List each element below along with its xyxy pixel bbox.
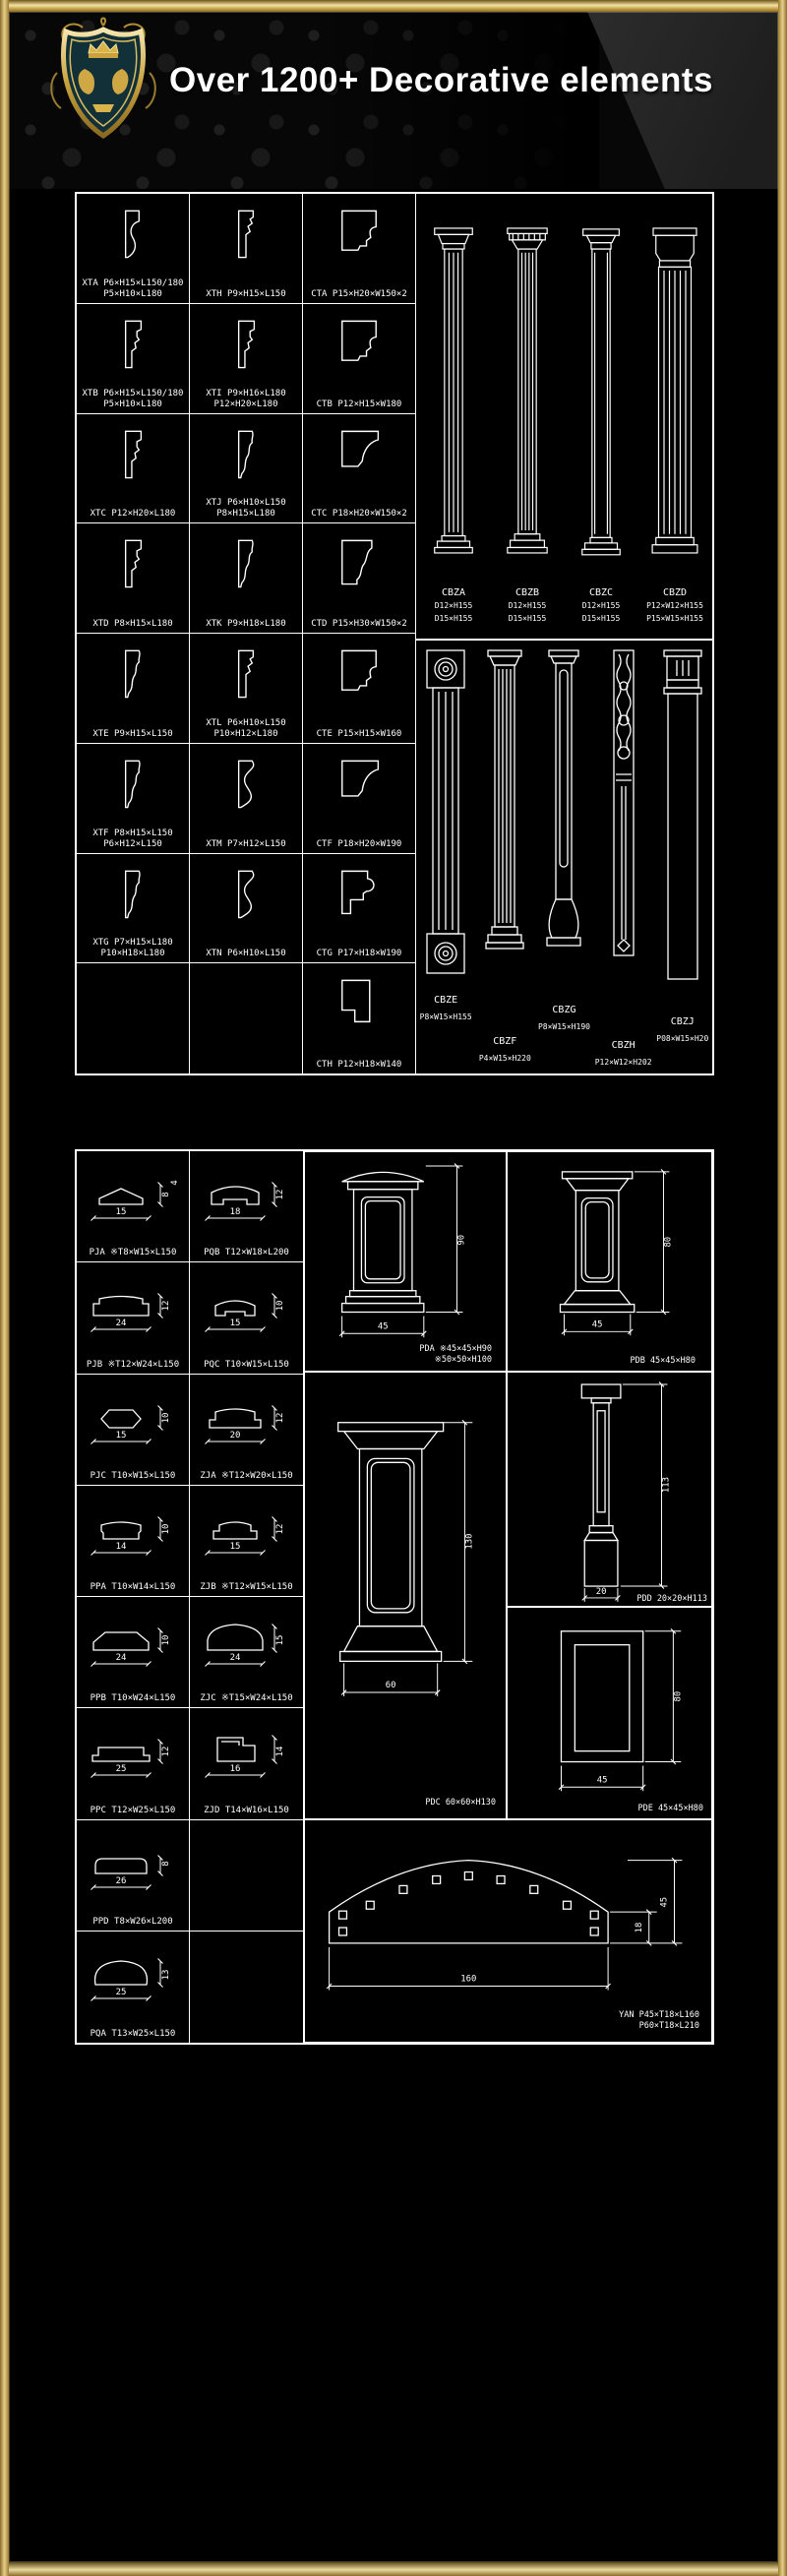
pedestal-cell-pde: 45 80 PDE 45×45×H80 xyxy=(507,1607,712,1819)
item-dims2: P15×W15×H155 xyxy=(646,613,703,624)
profile-drawing: 2412 xyxy=(82,1270,184,1347)
item-code: PJA xyxy=(90,1248,105,1257)
dim-width: 25 xyxy=(116,1764,127,1774)
molding-cell: XTH P9×H15×L150 xyxy=(190,194,303,304)
molding-label: XTJ P6×H10×L150P8×H15×L180 xyxy=(206,498,285,522)
item-label: PDA ※45×45×H90 xyxy=(419,1344,492,1355)
molding-cell: CTH P12×H18×W140 xyxy=(303,963,416,1073)
item-dims2: P6×H12×L150 xyxy=(92,839,172,850)
item-dims: P6×H15×L150/180 xyxy=(103,278,183,288)
item-code: CTD xyxy=(311,619,327,629)
gold-frame-left xyxy=(0,0,9,2576)
profile-cell: 2410PPB T10×W24×L150 xyxy=(77,1597,190,1708)
molding-cell: XTC P12×H20×L180 xyxy=(77,414,190,524)
profile-label: PJC T10×W15×L150 xyxy=(91,1471,176,1485)
item-dims2: D15×H155 xyxy=(509,613,547,624)
molding-profile-drawing xyxy=(225,756,267,814)
dim-height: 12 xyxy=(161,1747,171,1757)
item-dims: P7×H15×L180 xyxy=(114,938,173,948)
profile-label: ZJB ※T12×W15×L150 xyxy=(200,1582,292,1596)
item-label: PDB 45×45×H80 xyxy=(630,1356,696,1367)
item-dims: P12×H18×W140 xyxy=(337,1060,401,1070)
item-label: PDE 45×45×H80 xyxy=(637,1804,703,1814)
dim-height1: 18 xyxy=(635,1923,644,1933)
column-label: CBZCD12×H155D15×H155 xyxy=(582,587,621,624)
pedestal-label: PDB 45×45×H80 xyxy=(630,1356,696,1367)
item-dims: P8×W15×H190 xyxy=(538,1021,590,1032)
item-code: PQA xyxy=(91,2029,106,2039)
molding-cell: XTA P6×H15×L150/180P5×H10×L180 xyxy=(77,194,190,304)
empty-cell xyxy=(190,1820,304,1932)
pedestal-drawing: 20 113 xyxy=(508,1373,711,1606)
item-code: PQC xyxy=(204,1360,219,1370)
item-code: XTB xyxy=(83,389,98,399)
column-drawing xyxy=(421,206,486,575)
dim-height: 13 xyxy=(161,1969,171,1980)
item-code: XTC xyxy=(91,509,106,519)
dim-height: 10 xyxy=(275,1301,285,1312)
profile-label: PJA ※T8×W15×L150 xyxy=(90,1248,177,1261)
dim-width: 20 xyxy=(596,1587,607,1597)
molding-cell: CTB P12×H15×W180 xyxy=(303,304,416,414)
pilaster-label: CBZFP4×W15×H220 xyxy=(479,1036,531,1064)
item-dims: ※T12×W24×L150 xyxy=(108,1360,180,1370)
molding-profile-drawing xyxy=(112,206,153,264)
item-dims: P15×H30×W150×2 xyxy=(333,619,407,629)
item-label: PDD 20×20×H113 xyxy=(636,1594,707,1605)
dim-width: 16 xyxy=(229,1764,240,1774)
pedestal-cell-pdb: 45 80 PDB 45×45×H80 xyxy=(507,1151,712,1372)
item-dims: D12×H155 xyxy=(582,600,621,611)
molding-profile-drawing xyxy=(112,866,153,924)
molding-cell: XTI P9×H16×L180P12×H20×L180 xyxy=(190,304,303,414)
profile-label: ZJD T14×W16×L150 xyxy=(204,1806,289,1819)
molding-profile-drawing xyxy=(225,535,267,593)
profile-drawing: 1584 xyxy=(82,1159,184,1236)
molding-profile-drawing xyxy=(333,975,385,1030)
profile-cell: 1510PJC T10×W15×L150 xyxy=(77,1375,190,1486)
molding-cell: CTE P15×H15×W160 xyxy=(303,634,416,744)
pedestal-drawing: 45 80 xyxy=(508,1152,711,1371)
molding-profile-drawing xyxy=(225,645,267,704)
item-dims: P9×H16×L180 xyxy=(227,389,286,399)
item-dims: T13×W25×L150 xyxy=(111,2029,175,2039)
molding-cell: XTD P8×H15×L180 xyxy=(77,523,190,634)
item-code: XTF xyxy=(92,828,108,838)
profile-drawing: 1812 xyxy=(196,1159,298,1236)
item-dims: P12×H20×L180 xyxy=(111,509,175,519)
item-dims: P18×H20×W190 xyxy=(337,839,401,849)
dim-height2: 45 xyxy=(660,1897,670,1908)
molding-cell: XTK P9×H18×L180 xyxy=(190,523,303,634)
pedestal-drawing: 45 80 xyxy=(508,1608,711,1818)
profile-drawing: 1614 xyxy=(196,1716,298,1793)
column-figure: CBZCD12×H155D15×H155 xyxy=(565,194,637,639)
column-label: CBZAD12×H155D15×H155 xyxy=(435,587,473,624)
page-title: Over 1200+ Decorative elements xyxy=(169,61,713,100)
molding-label: XTM P7×H12×L150 xyxy=(206,839,285,853)
molding-profile-drawing xyxy=(112,426,153,484)
item-dims: P08×W15×H20 xyxy=(656,1033,708,1044)
catalog-page: Over 1200+ Decorative elements XTA P6×H1… xyxy=(0,0,787,2576)
item-code: CBZG xyxy=(538,1005,590,1015)
column-drawing xyxy=(495,206,560,575)
dim-width: 14 xyxy=(116,1542,127,1552)
item-dims: P12×W12×H202 xyxy=(595,1057,652,1068)
profiles-grid: 1584PJA ※T8×W15×L150 1812PQB T12×W18×L20… xyxy=(77,1151,304,2043)
item-code: CTA xyxy=(311,289,327,299)
dim-height: 10 xyxy=(161,1412,171,1423)
panel-profiles-and-pedestals: 1584PJA ※T8×W15×L150 1812PQB T12×W18×L20… xyxy=(75,1149,714,2045)
item-dims: P15×H20×W150×2 xyxy=(333,289,407,299)
molding-cell: CTC P18×H20×W150×2 xyxy=(303,414,416,524)
item-dims: T12×W25×L150 xyxy=(111,1806,175,1815)
dim-height: 130 xyxy=(464,1533,474,1549)
item-code: XTL xyxy=(206,718,221,728)
item-dims: P12×W12×H155 xyxy=(646,600,703,611)
pilaster-drawing xyxy=(537,646,590,985)
item-dims: T14×W16×L150 xyxy=(225,1806,289,1815)
item-dims: ※T12×W15×L150 xyxy=(221,1582,293,1592)
molding-profile-drawing xyxy=(112,756,153,814)
empty-cell xyxy=(77,963,190,1073)
dim-width: 24 xyxy=(116,1653,127,1663)
item-code: CTH xyxy=(317,1060,333,1070)
profile-cell: 1584PJA ※T8×W15×L150 xyxy=(77,1151,190,1262)
item-dims: ※T8×W15×L150 xyxy=(110,1248,176,1257)
molding-profile-drawing xyxy=(225,426,267,484)
molding-cell: XTL P6×H10×L150P10×H12×L180 xyxy=(190,634,303,744)
dim-width: 18 xyxy=(229,1207,240,1217)
pilaster-drawing xyxy=(419,646,472,985)
item-code: CBZE xyxy=(420,995,472,1006)
molding-label: XTN P6×H10×L150 xyxy=(206,949,285,962)
profile-cell: 1614ZJD T14×W16×L150 xyxy=(190,1708,304,1819)
dim-width: 20 xyxy=(229,1431,240,1441)
molding-label: XTL P6×H10×L150P10×H12×L180 xyxy=(206,718,285,743)
molding-cell: CTG P17×H18×W190 xyxy=(303,854,416,964)
dim-height: 10 xyxy=(161,1635,171,1646)
dim-width: 45 xyxy=(378,1321,389,1331)
item-dims2: D15×H155 xyxy=(435,613,473,624)
molding-profile-drawing xyxy=(333,645,385,701)
item-dims: T12×W18×L200 xyxy=(225,1248,289,1257)
pilaster-figure: CBZHP12×W12×H202 xyxy=(594,641,653,1073)
arch-label: YAN P45×T18×L160P60×T18×L210 xyxy=(619,2010,699,2032)
profile-drawing: 1410 xyxy=(82,1494,184,1570)
item-code: XTK xyxy=(206,619,221,629)
item-dims2: P10×H12×L180 xyxy=(206,729,285,740)
dim-width: 45 xyxy=(597,1775,608,1785)
pilasters-row: CBZEP8×W15×H155 CBZFP4×W15×H220 CBZGP8×W… xyxy=(416,641,712,1073)
molding-cell: XTJ P6×H10×L150P8×H15×L180 xyxy=(190,414,303,524)
item-code: XTD xyxy=(92,619,108,629)
item-label2: P60×T18×L210 xyxy=(619,2021,699,2032)
pedestal-cell-pda: 45 90 PDA ※45×45×H90※50×50×H100 xyxy=(304,1151,507,1372)
molding-label: XTC P12×H20×L180 xyxy=(91,509,176,522)
item-label: YAN P45×T18×L160 xyxy=(619,2010,699,2021)
pilaster-drawing xyxy=(656,646,709,985)
dim-height: 113 xyxy=(661,1477,671,1493)
item-code: XTE xyxy=(92,729,108,739)
item-code: CTC xyxy=(311,509,327,519)
molding-label: XTK P9×H18×L180 xyxy=(206,619,285,633)
item-code: ZJD xyxy=(204,1806,219,1815)
profile-cell: 268PPD T8×W26×L200 xyxy=(77,1820,190,1932)
profile-label: PPD T8×W26×L200 xyxy=(92,1917,172,1931)
molding-label: CTA P15×H20×W150×2 xyxy=(311,289,407,303)
item-dims: P6×H10×L150 xyxy=(227,718,286,728)
item-code: PPD xyxy=(92,1917,108,1927)
dim-height: 90 xyxy=(456,1235,466,1246)
pedestal-label: PDE 45×45×H80 xyxy=(637,1804,703,1814)
dim-height: 12 xyxy=(275,1412,285,1423)
profile-drawing: 2410 xyxy=(82,1605,184,1682)
molding-cell: XTB P6×H15×L150/180P5×H10×L180 xyxy=(77,304,190,414)
item-label: PDC 60×60×H130 xyxy=(425,1798,496,1809)
item-code: CTG xyxy=(317,949,333,958)
molding-profile-drawing xyxy=(112,645,153,704)
profile-drawing: 1510 xyxy=(196,1270,298,1347)
item-code: CTE xyxy=(317,729,333,739)
pedestal-label: PDC 60×60×H130 xyxy=(425,1798,496,1809)
pilaster-drawing xyxy=(597,646,650,985)
item-dims: T10×W15×L150 xyxy=(111,1471,175,1481)
molding-label: XTG P7×H15×L180P10×H18×L180 xyxy=(92,938,172,962)
item-code: CTB xyxy=(317,399,333,409)
item-dims: P8×H15×L150 xyxy=(114,828,173,838)
molding-label: CTE P15×H15×W160 xyxy=(317,729,402,743)
dim-height: 80 xyxy=(673,1691,683,1702)
item-code: PPB xyxy=(91,1693,106,1703)
item-dims: D12×H155 xyxy=(435,600,473,611)
dim-width: 25 xyxy=(116,1988,127,1997)
dim-width: 15 xyxy=(116,1431,127,1441)
empty-cell xyxy=(190,963,303,1073)
item-code: ZJB xyxy=(200,1582,215,1592)
item-code: XTM xyxy=(206,839,221,849)
item-code: CBZJ xyxy=(656,1016,708,1027)
item-dims2: P10×H18×L180 xyxy=(92,949,172,959)
item-dims: P8×H15×L180 xyxy=(114,619,173,629)
item-dims: T10×W24×L150 xyxy=(111,1693,175,1703)
item-dims: D12×H155 xyxy=(509,600,547,611)
dim-height: 14 xyxy=(275,1747,285,1757)
dim-height: 12 xyxy=(275,1523,285,1534)
item-dims: P17×H18×W190 xyxy=(337,949,401,958)
item-dims: P6×H10×L150 xyxy=(227,949,286,958)
column-drawing xyxy=(569,206,634,575)
profile-drawing: 2513 xyxy=(82,1939,184,2016)
item-code: XTG xyxy=(92,938,108,948)
pilaster-figure: CBZFP4×W15×H220 xyxy=(475,641,534,1073)
profile-label: PQA T13×W25×L150 xyxy=(91,2029,176,2043)
molding-profile-drawing xyxy=(225,206,267,264)
item-code: CBZH xyxy=(595,1040,652,1051)
molding-cell: CTA P15×H20×W150×2 xyxy=(303,194,416,304)
item-dims2: P5×H10×L180 xyxy=(83,289,184,300)
profile-drawing: 1512 xyxy=(196,1494,298,1570)
molding-cell: XTM P7×H12×L150 xyxy=(190,744,303,854)
pedestal-cell-pdc: 60 130 PDC 60×60×H130 xyxy=(304,1372,507,1819)
item-label2: ※50×50×H100 xyxy=(419,1355,492,1366)
dim-height: 80 xyxy=(663,1237,673,1248)
column-figure: CBZDP12×W12×H155P15×W15×H155 xyxy=(638,194,711,639)
item-dims: P7×H12×L150 xyxy=(227,839,286,849)
molding-label: XTF P8×H15×L150P6×H12×L150 xyxy=(92,828,172,853)
pilaster-label: CBZEP8×W15×H155 xyxy=(420,995,472,1022)
item-dims: T10×W14×L150 xyxy=(111,1582,175,1592)
pedestal-drawing: 60 130 xyxy=(305,1373,506,1818)
item-code: XTA xyxy=(83,278,98,288)
item-code: CBZF xyxy=(479,1036,531,1047)
item-dims: ※T15×W24×L150 xyxy=(221,1693,293,1703)
item-dims: P9×H15×L150 xyxy=(114,729,173,739)
item-dims2: D15×H155 xyxy=(582,613,621,624)
profile-cell: 2512PPC T12×W25×L150 xyxy=(77,1708,190,1819)
profile-cell: 2415ZJC ※T15×W24×L150 xyxy=(190,1597,304,1708)
molding-label: CTH P12×H18×W140 xyxy=(317,1060,402,1073)
pedestal-label: PDD 20×20×H113 xyxy=(636,1594,707,1605)
item-code: XTH xyxy=(206,289,221,299)
profile-label: PPC T12×W25×L150 xyxy=(91,1806,176,1819)
molding-cell: XTE P9×H15×L150 xyxy=(77,634,190,744)
pilaster-label: CBZJP08×W15×H20 xyxy=(656,1016,708,1044)
pilaster-label: CBZGP8×W15×H190 xyxy=(538,1005,590,1032)
profile-cell: 2412PJB ※T12×W24×L150 xyxy=(77,1262,190,1374)
molding-profile-drawing xyxy=(333,535,385,590)
columns-row-top: CBZAD12×H155D15×H155 CBZBD12×H155D15×H15… xyxy=(416,194,712,639)
column-label: CBZBD12×H155D15×H155 xyxy=(509,587,547,624)
item-code: CTF xyxy=(317,839,333,849)
item-dims: ※T12×W20×L150 xyxy=(221,1471,293,1481)
pilaster-figure: CBZGP8×W15×H190 xyxy=(534,641,593,1073)
molding-label: XTI P9×H16×L180P12×H20×L180 xyxy=(206,389,285,413)
profile-label: ZJC ※T15×W24×L150 xyxy=(200,1693,292,1707)
molding-label: CTG P17×H18×W190 xyxy=(317,949,402,962)
pilaster-label: CBZHP12×W12×H202 xyxy=(595,1040,652,1068)
profile-drawing: 2012 xyxy=(196,1382,298,1459)
arch-cell-yan: 160 18 45 YAN P45×T18×L160P60×T18×L210 xyxy=(304,1819,712,2043)
dim-height: 8 xyxy=(161,1192,171,1196)
dim-height: 12 xyxy=(275,1190,285,1200)
profile-cell: 1410PPA T10×W14×L150 xyxy=(77,1486,190,1597)
panel-moldings-and-columns: XTA P6×H15×L150/180P5×H10×L180 XTH P9×H1… xyxy=(75,192,714,1075)
profile-label: ZJA ※T12×W20×L150 xyxy=(200,1471,292,1485)
item-code: PJC xyxy=(91,1471,106,1481)
dim-width: 24 xyxy=(229,1653,240,1663)
item-code: ZJC xyxy=(200,1693,215,1703)
dim-width: 60 xyxy=(386,1681,396,1690)
item-code: CBZC xyxy=(582,587,621,598)
molding-profile-drawing xyxy=(112,535,153,593)
molding-cell: CTD P15×H30×W150×2 xyxy=(303,523,416,634)
item-dims: P18×H20×W150×2 xyxy=(333,509,407,519)
item-dims: P9×H18×L180 xyxy=(227,619,286,629)
column-drawing xyxy=(642,206,707,575)
column-label: CBZDP12×W12×H155P15×W15×H155 xyxy=(646,587,703,624)
item-dims: P15×H15×W160 xyxy=(337,729,401,739)
item-code: PJB xyxy=(87,1360,102,1370)
profile-label: PPA T10×W14×L150 xyxy=(91,1582,176,1596)
molding-profile-drawing xyxy=(333,756,385,811)
item-code: PPA xyxy=(91,1582,106,1592)
dim-height: 15 xyxy=(275,1635,285,1646)
profile-drawing: 268 xyxy=(82,1828,184,1905)
profile-cell: 1512ZJB ※T12×W15×L150 xyxy=(190,1486,304,1597)
dim-width: 26 xyxy=(116,1876,127,1886)
item-code: ZJA xyxy=(200,1471,215,1481)
dim-height: 10 xyxy=(161,1523,171,1534)
profile-cell: 2513PQA T13×W25×L150 xyxy=(77,1932,190,2043)
item-dims: P12×H15×W180 xyxy=(337,399,401,409)
molding-label: CTF P18×H20×W190 xyxy=(317,839,402,853)
gold-frame-top xyxy=(0,0,787,12)
profile-label: PJB ※T12×W24×L150 xyxy=(87,1360,179,1374)
molding-profile-drawing xyxy=(333,426,385,481)
profile-cell: 2012ZJA ※T12×W20×L150 xyxy=(190,1375,304,1486)
item-dims: P4×W15×H220 xyxy=(479,1053,531,1064)
arch-drawing: 160 18 45 xyxy=(305,1820,711,2042)
molding-cell: XTN P6×H10×L150 xyxy=(190,854,303,964)
molding-label: CTC P18×H20×W150×2 xyxy=(311,509,407,522)
profile-drawing: 2512 xyxy=(82,1716,184,1793)
dim-width: 15 xyxy=(229,1319,240,1328)
column-figure: CBZAD12×H155D15×H155 xyxy=(417,194,490,639)
item-code: CBZB xyxy=(509,587,547,598)
molding-label: XTE P9×H15×L150 xyxy=(92,729,172,743)
gold-frame-bottom xyxy=(0,2562,787,2576)
column-figure: CBZBD12×H155D15×H155 xyxy=(491,194,564,639)
dim-height: 8 xyxy=(161,1861,171,1866)
profile-cell: 1510PQC T10×W15×L150 xyxy=(190,1262,304,1374)
pilaster-figure: CBZJP08×W15×H20 xyxy=(653,641,712,1073)
item-dims: T8×W26×L200 xyxy=(114,1917,173,1927)
item-code: CBZA xyxy=(435,587,473,598)
molding-profile-drawing xyxy=(333,866,385,921)
heraldic-crest-logo xyxy=(45,14,161,157)
molding-profile-drawing xyxy=(112,316,153,374)
dim-width: 24 xyxy=(116,1319,127,1328)
empty-cell xyxy=(190,1932,304,2043)
molding-label: XTB P6×H15×L150/180P5×H10×L180 xyxy=(83,389,184,413)
pedestal-cell-pdd: 20 113 PDD 20×20×H113 xyxy=(507,1372,712,1607)
item-code: CBZD xyxy=(646,587,703,598)
pedestal-drawing: 45 90 xyxy=(305,1152,506,1371)
molding-label: XTA P6×H15×L150/180P5×H10×L180 xyxy=(83,278,184,303)
molding-cell: XTG P7×H15×L180P10×H18×L180 xyxy=(77,854,190,964)
item-dims2: P12×H20×L180 xyxy=(206,399,285,410)
profile-label: PPB T10×W24×L150 xyxy=(91,1693,176,1707)
dim-width: 160 xyxy=(460,1975,476,1985)
dim-width: 15 xyxy=(116,1207,127,1217)
dim-height: 12 xyxy=(161,1301,171,1312)
profile-cell: 1812PQB T12×W18×L200 xyxy=(190,1151,304,1262)
profile-label: PQB T12×W18×L200 xyxy=(204,1248,289,1261)
item-code: XTI xyxy=(206,389,221,399)
item-dims: T10×W15×L150 xyxy=(225,1360,289,1370)
molding-label: XTH P9×H15×L150 xyxy=(206,289,285,303)
molding-profile-drawing xyxy=(225,866,267,924)
molding-cell: XTF P8×H15×L150P6×H12×L150 xyxy=(77,744,190,854)
profile-drawing: 1510 xyxy=(82,1382,184,1459)
item-code: PQB xyxy=(204,1248,219,1257)
item-dims: P6×H15×L150/180 xyxy=(103,389,183,399)
profile-label: PQC T10×W15×L150 xyxy=(204,1360,289,1374)
item-dims: P6×H10×L150 xyxy=(227,498,286,508)
molding-label: CTB P12×H15×W180 xyxy=(317,399,402,413)
molding-label: CTD P15×H30×W150×2 xyxy=(311,619,407,633)
